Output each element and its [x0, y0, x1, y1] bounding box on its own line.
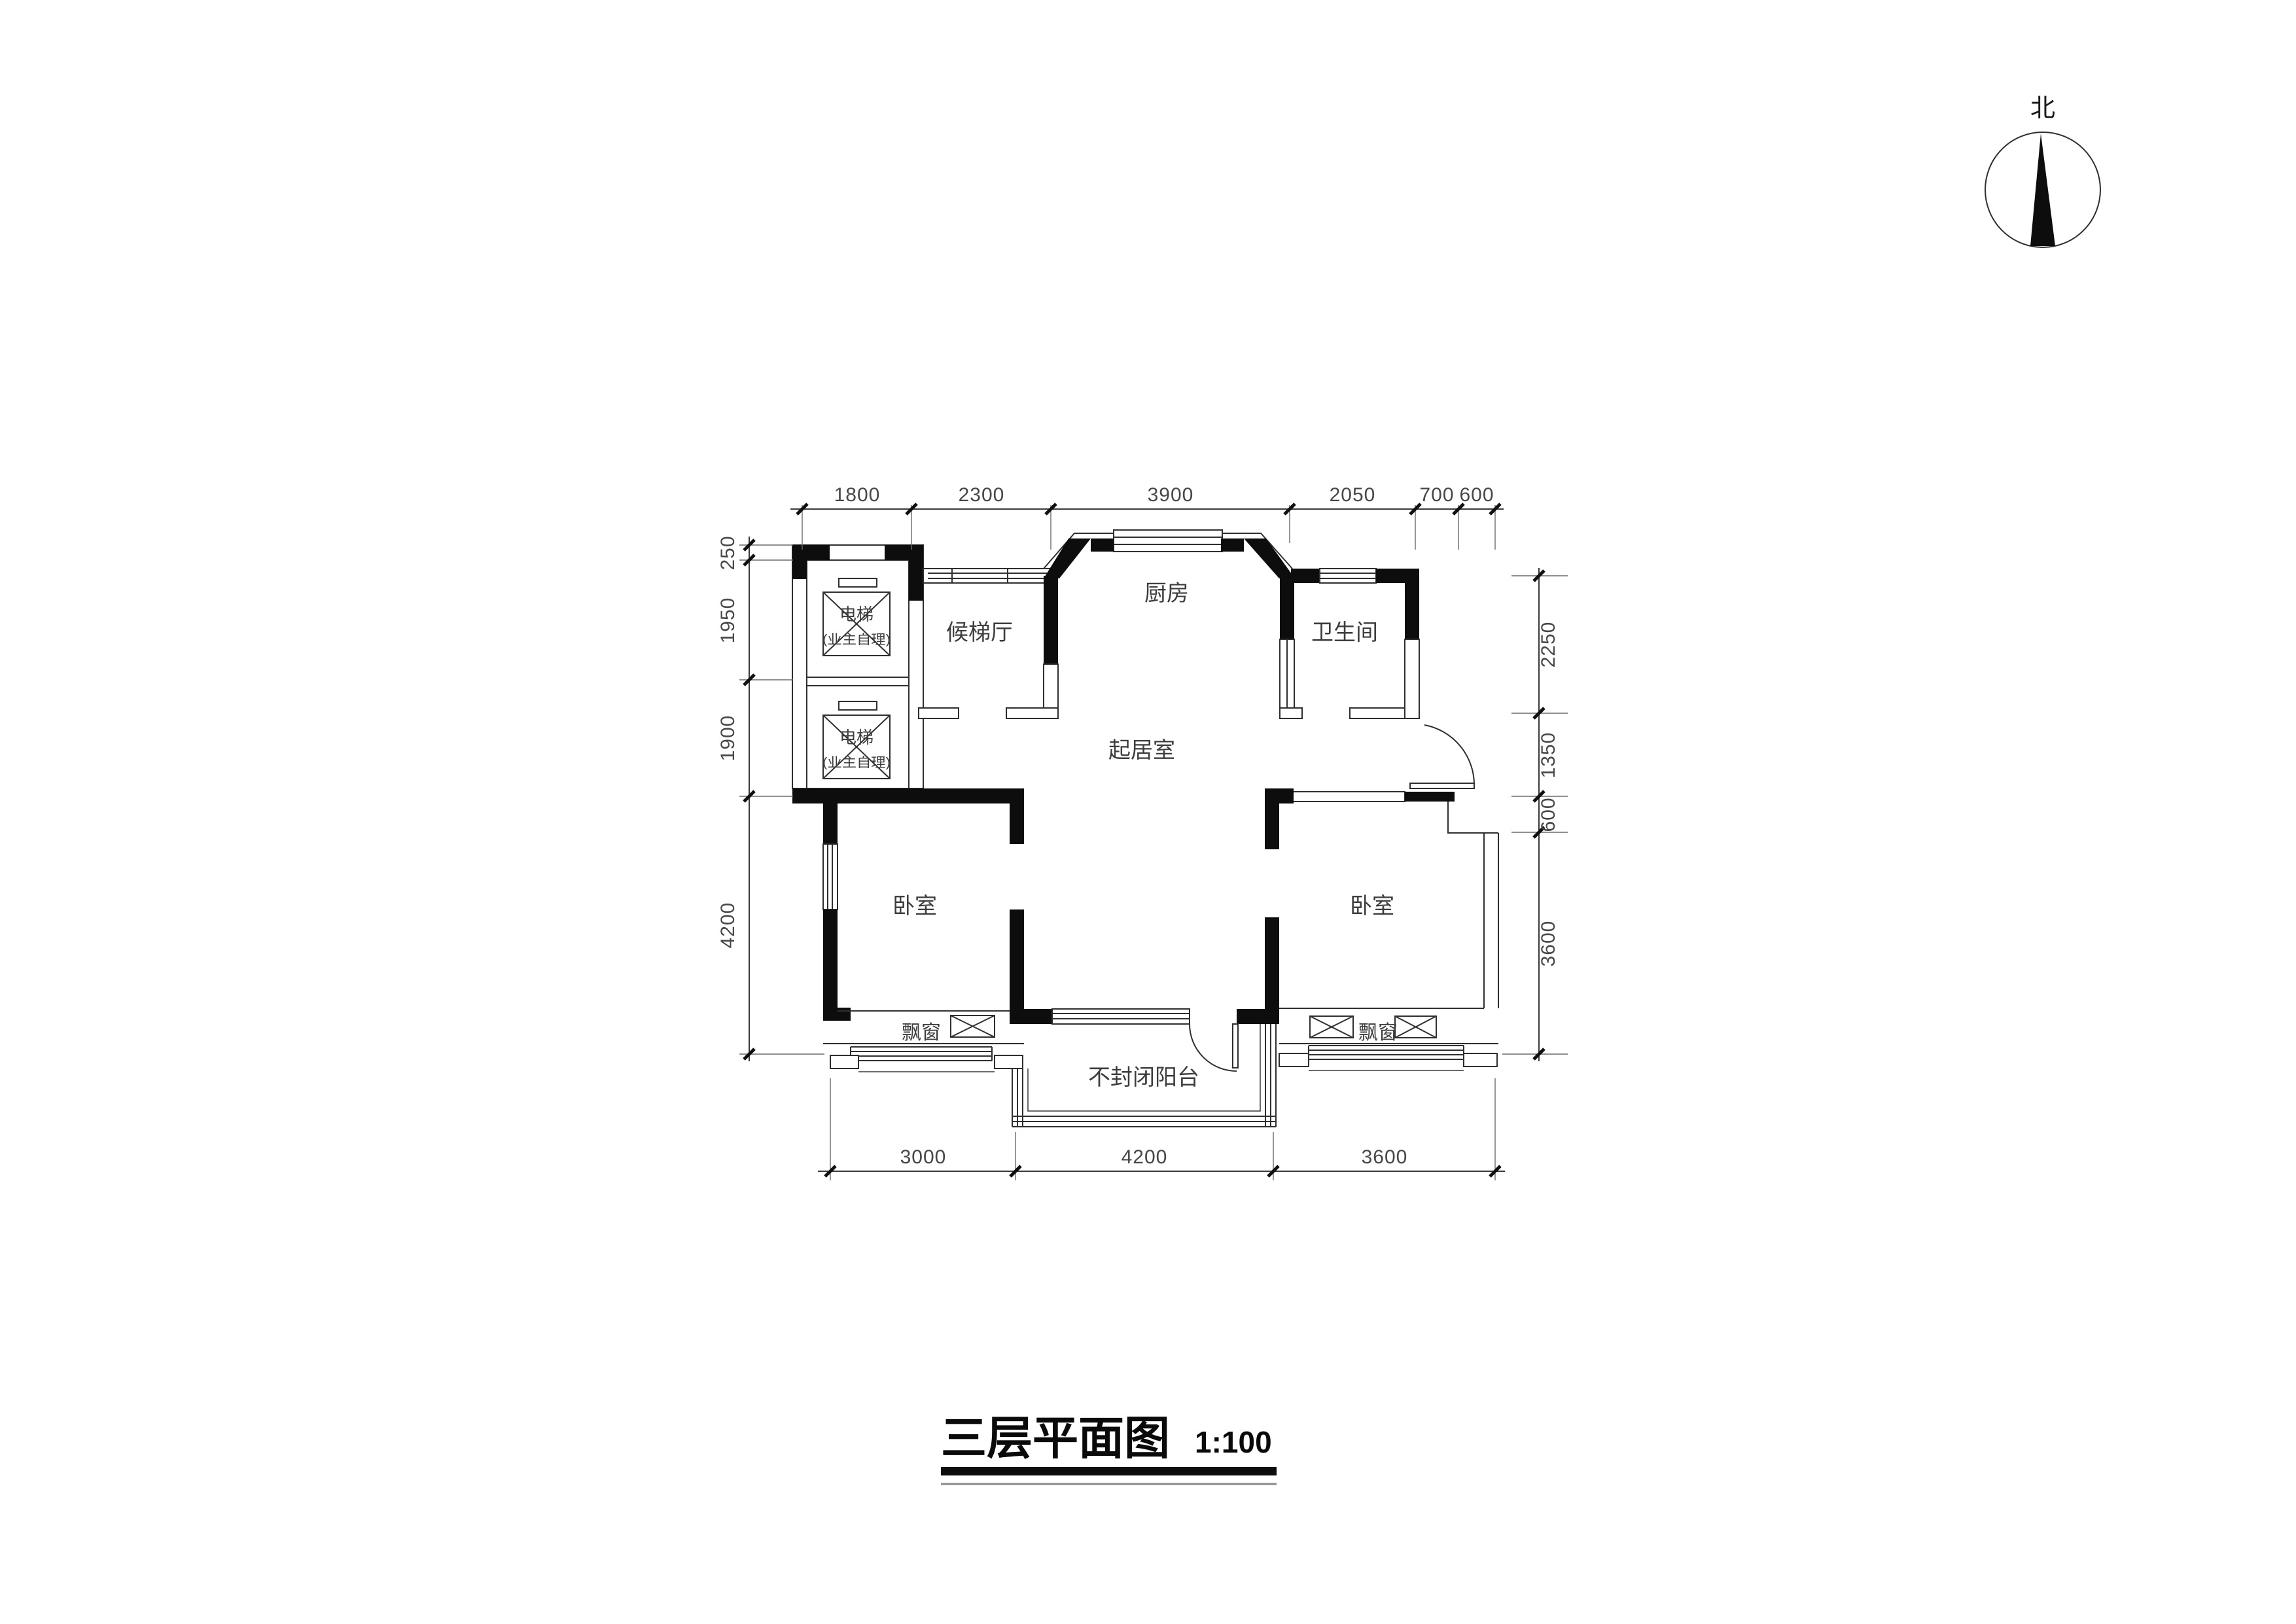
bay-step	[1464, 1053, 1497, 1067]
wall-segment	[1244, 538, 1295, 578]
balcony: 不封闭阳台	[1012, 1024, 1276, 1127]
dim-bottom-2: 3600	[1362, 1146, 1408, 1168]
lobby-top-wall	[923, 569, 1051, 583]
wall-segment	[823, 1008, 851, 1021]
title-scale: 1:100	[1195, 1425, 1272, 1459]
balcony-door-swing-arc	[1190, 1024, 1237, 1071]
floor-plan-drawing: 北 电梯 (业主自理) 电梯 (业主自理)	[0, 0, 2296, 1624]
lobby-south-wall-left	[919, 708, 959, 718]
wall-segment	[1376, 569, 1419, 583]
dim-left-0: 250	[717, 535, 739, 570]
wall-segment	[909, 545, 923, 601]
dim-left-3: 4200	[717, 902, 739, 949]
dim-top-5: 600	[1459, 484, 1494, 506]
kitchen-south-stub	[1280, 708, 1302, 718]
dim-top-1: 2300	[959, 484, 1005, 506]
bedroom-right: 卧室 飘窗	[1279, 894, 1498, 1070]
dim-right-1: 1350	[1538, 732, 1559, 779]
right-niche-step	[1448, 802, 1484, 1008]
kitchen: 厨房	[1044, 530, 1302, 718]
entry-door	[1279, 725, 1498, 1008]
wall-segment	[792, 545, 807, 579]
room-note-elevator-bottom: (业主自理)	[822, 755, 891, 770]
wall-segment	[1405, 792, 1455, 802]
bathroom: 卫生间	[1291, 569, 1419, 718]
dim-right-0: 2250	[1538, 622, 1559, 668]
wall-segment	[792, 788, 1024, 803]
room-label-bathroom: 卫生间	[1311, 620, 1378, 645]
room-label-kitchen: 厨房	[1144, 581, 1189, 606]
bay-step	[830, 1055, 858, 1068]
room-label-bedroom-left: 卧室	[892, 894, 937, 919]
dim-top-3: 2050	[1330, 484, 1376, 506]
living-south-window	[1052, 1009, 1190, 1024]
bay-label-right: 飘窗	[1358, 1022, 1398, 1044]
dim-right-2: 600	[1538, 797, 1559, 832]
wall-segment	[1044, 576, 1058, 664]
wall-segment	[1091, 538, 1114, 552]
shaft-outline	[792, 545, 923, 788]
bay-window-glass-right	[1309, 1046, 1464, 1059]
elevator-door-top	[839, 578, 877, 587]
dim-left-2: 1900	[717, 715, 739, 762]
lobby-south-wall-right	[1006, 708, 1058, 718]
room-label-lobby: 候梯厅	[946, 620, 1013, 645]
dim-bottom-1: 4200	[1122, 1146, 1168, 1168]
room-note-elevator-top: (业主自理)	[822, 632, 891, 647]
dim-top-2: 3900	[1148, 484, 1194, 506]
floor-plan-sheet: 北 电梯 (业主自理) 电梯 (业主自理)	[0, 0, 2296, 1624]
room-label-elevator-bottom: 电梯	[839, 728, 874, 747]
bay-label-left: 飘窗	[902, 1022, 941, 1044]
shaft-divider-wall	[807, 677, 909, 686]
wall-segment	[1237, 1009, 1279, 1024]
kitchen-left-wall-lower	[1044, 664, 1058, 708]
bedroom-left: 卧室 飘窗	[823, 803, 1024, 1072]
wall-segment	[1221, 538, 1244, 552]
balcony-door-leaf	[1233, 1024, 1238, 1068]
dim-top-4: 700	[1419, 484, 1454, 506]
wall-segment	[1291, 569, 1320, 583]
elevator-lobby: 候梯厅	[919, 569, 1058, 718]
north-label: 北	[2030, 95, 2055, 122]
bathroom-south-wall	[1350, 708, 1405, 718]
entry-door-leaf	[1410, 783, 1474, 788]
elevator-shaft: 电梯 (业主自理) 电梯 (业主自理)	[792, 545, 923, 788]
wall-segment	[1265, 788, 1279, 849]
wall-segment	[1010, 909, 1024, 1019]
entry-door-swing-arc	[1424, 725, 1474, 786]
dimension-chain-right: 2250 1350 600 3600	[1502, 568, 1568, 1061]
dim-right-3: 3600	[1538, 921, 1559, 967]
bay-window-glass-left	[851, 1047, 992, 1061]
bay-step	[1279, 1053, 1309, 1067]
bathroom-right-wall-lower	[1405, 639, 1419, 718]
window-x-symbol	[951, 1015, 995, 1037]
wall-segment	[1010, 803, 1024, 844]
bay-step	[995, 1055, 1023, 1068]
dim-top-0: 1800	[834, 484, 881, 506]
wall-segment	[1265, 917, 1279, 1011]
bathroom-window	[1320, 569, 1376, 583]
window-x-symbol	[1310, 1016, 1353, 1038]
bedroom-left-window	[823, 844, 838, 909]
drawing-title: 三层平面图 1:100	[941, 1413, 1277, 1484]
bedroom-right-top-wall	[1279, 792, 1405, 802]
dimension-chain-bottom: 3000 4200 3600	[818, 1078, 1505, 1180]
title-underline-thick	[941, 1467, 1277, 1475]
north-compass: 北	[1985, 95, 2100, 247]
window-x-symbol	[1395, 1016, 1436, 1038]
elevator-door-bottom	[839, 701, 877, 710]
wall-segment	[1405, 583, 1419, 639]
room-label-balcony: 不封闭阳台	[1088, 1065, 1199, 1090]
north-needle-icon	[2030, 133, 2055, 246]
kitchen-bay-window	[1114, 530, 1222, 552]
room-label-bedroom-right: 卧室	[1350, 894, 1394, 919]
dim-left-1: 1950	[717, 597, 739, 644]
dim-bottom-0: 3000	[900, 1146, 947, 1168]
room-label-living: 起居室	[1108, 738, 1175, 763]
wall-segment	[823, 909, 838, 1021]
title-text: 三层平面图	[941, 1413, 1170, 1464]
room-label-elevator-top: 电梯	[839, 605, 874, 624]
wall-segment	[823, 803, 838, 844]
